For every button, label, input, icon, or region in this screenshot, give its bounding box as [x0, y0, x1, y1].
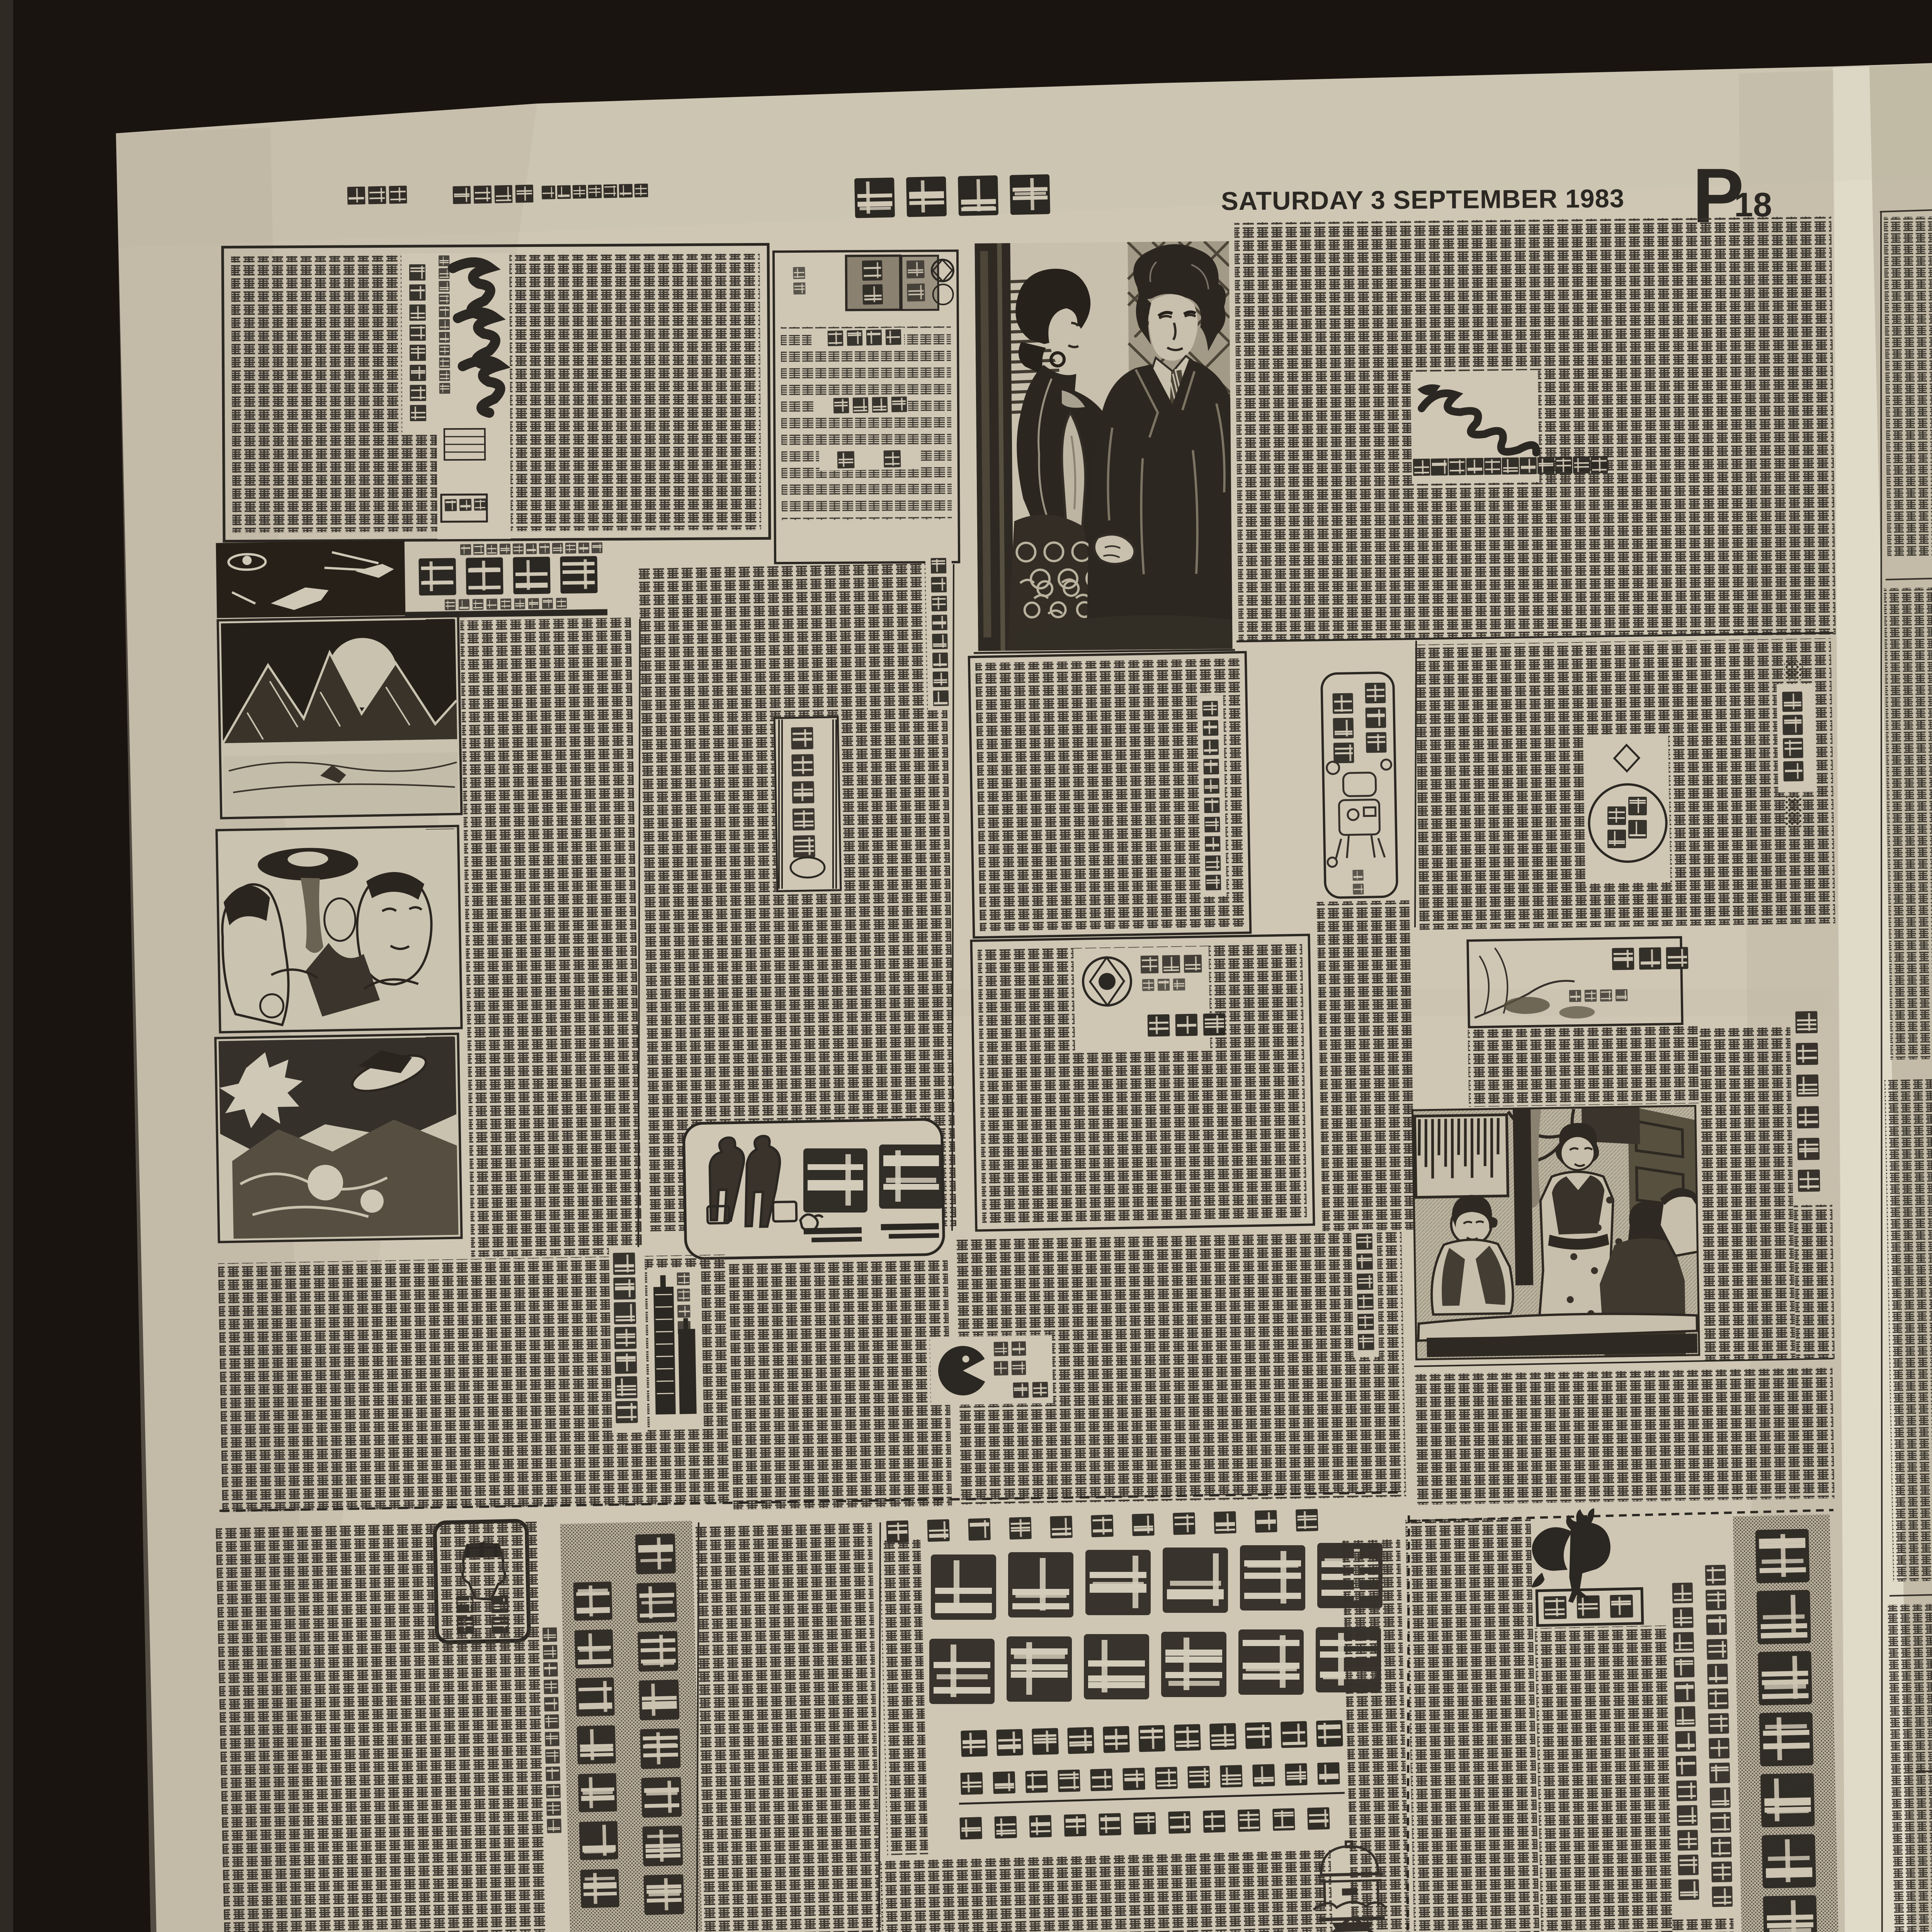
svg-text:SATURDAY 3 SEPTEMBER 1983: SATURDAY 3 SEPTEMBER 1983 — [1221, 184, 1625, 216]
